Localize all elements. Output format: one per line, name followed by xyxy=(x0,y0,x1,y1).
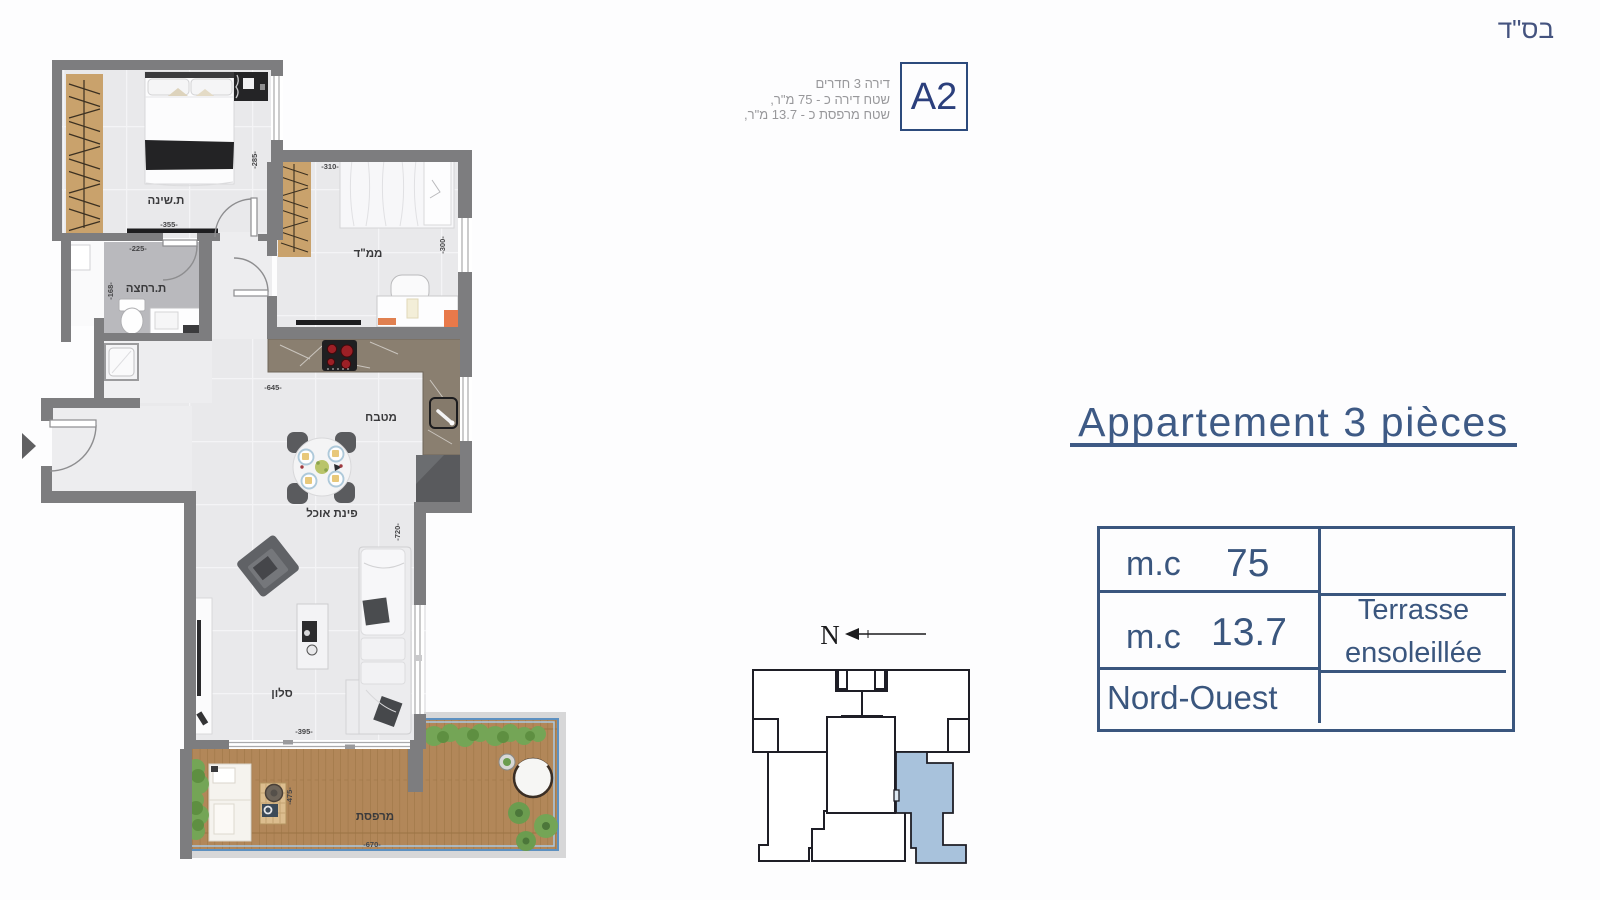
svg-text:-645-: -645- xyxy=(264,383,282,392)
svg-text:-670-: -670- xyxy=(363,840,381,849)
svg-text:-285-: -285- xyxy=(250,151,259,169)
svg-text:-300-: -300- xyxy=(438,236,447,254)
svg-text:-720-: -720- xyxy=(393,523,402,541)
svg-text:-355-: -355- xyxy=(160,220,178,229)
svg-text:-475-: -475- xyxy=(285,787,294,805)
svg-text:-395-: -395- xyxy=(295,727,313,736)
svg-text:ת.רחצה: ת.רחצה xyxy=(126,283,167,295)
svg-text:ממ"ד: ממ"ד xyxy=(354,248,383,260)
svg-text:-310-: -310- xyxy=(321,162,339,171)
svg-text:מטבח: מטבח xyxy=(365,412,397,424)
svg-text:סלון: סלון xyxy=(271,687,293,700)
svg-text:-225-: -225- xyxy=(129,244,147,253)
svg-text:ת.שינה: ת.שינה xyxy=(148,195,185,207)
svg-text:מרפסת: מרפסת xyxy=(356,811,394,823)
svg-text:-168-: -168- xyxy=(106,282,115,300)
svg-text:N: N xyxy=(820,620,840,650)
svg-text:פינת אוכל: פינת אוכל xyxy=(306,507,357,520)
